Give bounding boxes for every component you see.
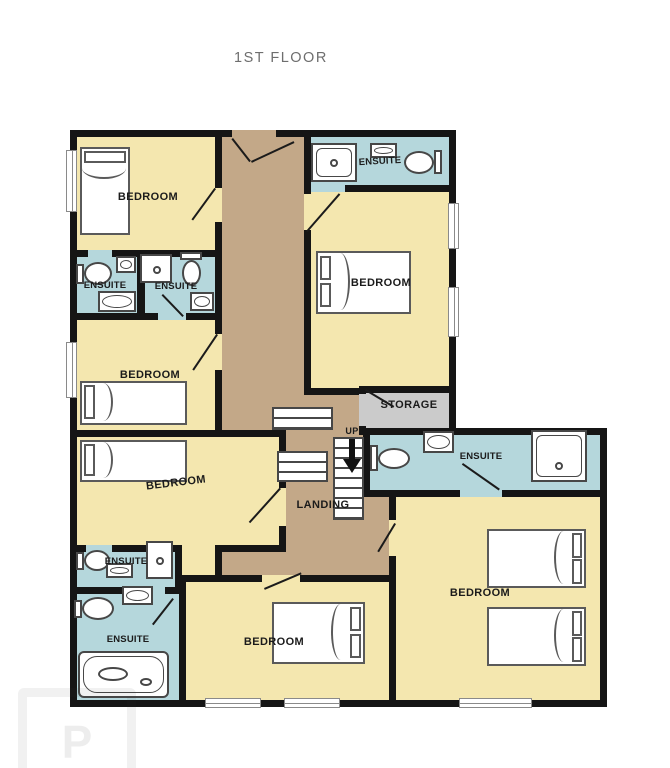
double-bed-icon bbox=[272, 602, 365, 664]
stairs-upper-flight bbox=[272, 407, 333, 430]
vanity-sink-icon bbox=[98, 291, 136, 312]
window bbox=[448, 203, 459, 249]
bedroom-alcove-floor bbox=[182, 543, 215, 575]
room-label-bedroom-bottom-center: BEDROOM bbox=[244, 636, 304, 648]
watermark-logo: P bbox=[18, 688, 136, 768]
window bbox=[66, 150, 77, 212]
room-label-ensuite-bottom-b: ENSUITE bbox=[107, 634, 150, 645]
window bbox=[459, 698, 532, 708]
stairs-side-flight bbox=[277, 451, 328, 482]
floor-plan-canvas: 1ST FLOOR bbox=[0, 0, 670, 768]
room-label-ensuite-bottom-a: ENSUITE bbox=[105, 556, 148, 567]
single-bed-icon bbox=[80, 381, 187, 425]
door-opening bbox=[460, 490, 502, 497]
sink-icon bbox=[190, 292, 214, 311]
window bbox=[66, 342, 77, 398]
room-label-ensuite-left-a: ENSUITE bbox=[84, 280, 127, 291]
room-label-landing: LANDING bbox=[297, 499, 350, 511]
wall-segment bbox=[276, 130, 311, 137]
single-bed-icon bbox=[487, 529, 586, 588]
door-opening bbox=[279, 488, 286, 526]
toilet-icon bbox=[370, 445, 378, 471]
floor-title: 1ST FLOOR bbox=[234, 50, 328, 66]
sink-icon bbox=[116, 256, 136, 273]
single-bed-icon bbox=[487, 607, 586, 666]
toilet-icon bbox=[378, 448, 410, 469]
wall-segment bbox=[215, 130, 232, 137]
room-label-bedroom-left-mid: BEDROOM bbox=[120, 369, 180, 381]
door-opening bbox=[88, 250, 112, 257]
toilet-icon bbox=[82, 597, 114, 620]
toilet-icon bbox=[404, 151, 434, 174]
watermark-letter: P bbox=[62, 715, 93, 768]
toilet-icon bbox=[74, 600, 82, 618]
shower-icon bbox=[311, 143, 357, 182]
sink-icon bbox=[122, 586, 153, 605]
door-opening bbox=[215, 334, 222, 370]
toilet-icon bbox=[180, 252, 202, 260]
room-label-bedroom-bottom-right: BEDROOM bbox=[450, 587, 510, 599]
door-opening bbox=[215, 188, 222, 222]
toilet-icon bbox=[434, 150, 442, 174]
shower-icon bbox=[140, 254, 172, 283]
shower-icon bbox=[531, 430, 587, 482]
sink-icon bbox=[423, 431, 454, 453]
window bbox=[284, 698, 340, 708]
room-label-storage: STORAGE bbox=[381, 399, 438, 411]
stairs-direction-arrow bbox=[349, 439, 355, 461]
room-label-ensuite-top-right: ENSUITE bbox=[358, 155, 401, 168]
room-label-ensuite-right-mid: ENSUITE bbox=[460, 451, 503, 462]
door-opening bbox=[359, 394, 366, 426]
toilet-icon bbox=[76, 552, 84, 570]
corridor-top-doorway-floor bbox=[232, 130, 276, 140]
door-opening bbox=[311, 185, 345, 192]
room-label-bedroom-top-right: BEDROOM bbox=[351, 277, 411, 289]
single-bed-icon bbox=[80, 440, 187, 482]
room-label-bedroom-top-left: BEDROOM bbox=[118, 191, 178, 203]
wall-segment bbox=[215, 545, 222, 582]
window bbox=[205, 698, 261, 708]
room-label-ensuite-left-b: ENSUITE bbox=[155, 281, 198, 292]
shower-icon bbox=[146, 541, 173, 579]
window bbox=[448, 287, 459, 337]
stairs-up-label: UP bbox=[345, 426, 358, 436]
stairs-arrow-head-icon bbox=[343, 459, 361, 473]
